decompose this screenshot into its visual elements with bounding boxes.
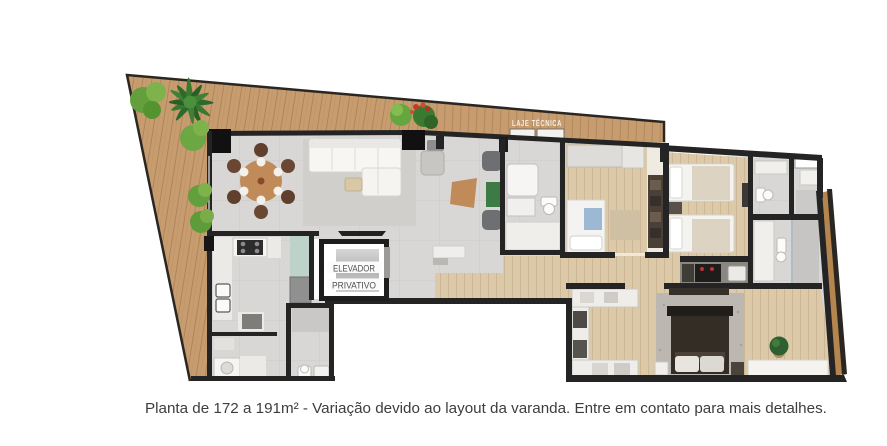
svg-text:PRIVATIVO: PRIVATIVO — [332, 281, 376, 292]
svg-text:ELEVADOR: ELEVADOR — [333, 264, 375, 275]
svg-text:LAJE TÉCNICA: LAJE TÉCNICA — [512, 119, 562, 128]
